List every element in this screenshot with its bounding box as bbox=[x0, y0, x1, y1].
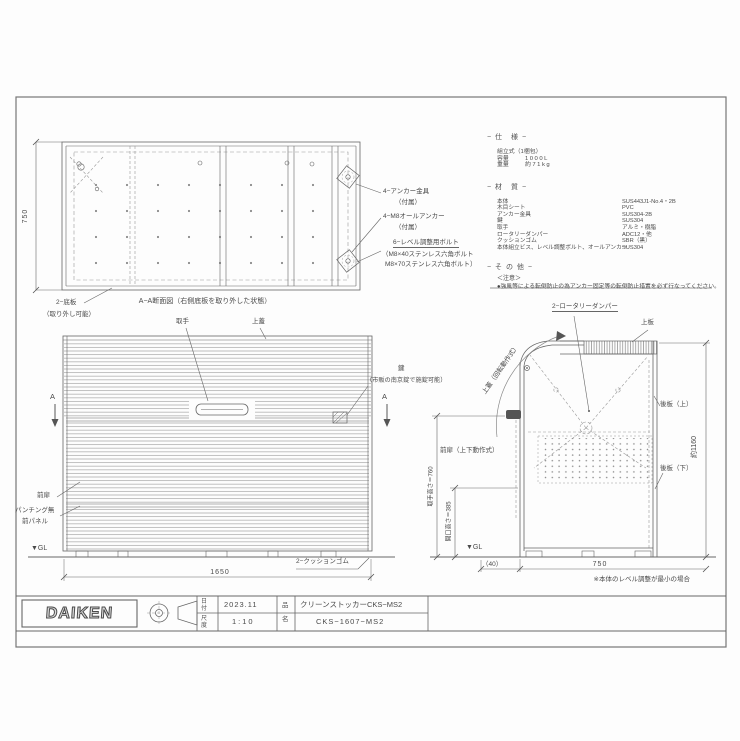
material-label: 本体 bbox=[497, 199, 508, 205]
rotary-damper-label: 2−ロータリーダンパー bbox=[552, 303, 618, 312]
handle-height-dim: 取手高さ＝760 bbox=[429, 456, 436, 516]
date-value: 2023.11 bbox=[224, 601, 258, 610]
material-label: 本体組立ビス、レベル調整ボルト、オールアンカー bbox=[497, 245, 627, 251]
section-marker-a-right: A bbox=[382, 393, 387, 402]
material-label: 取手 bbox=[497, 225, 508, 231]
key-label: 鍵 bbox=[398, 365, 405, 372]
anchor-fitting-sub: （付属） bbox=[395, 199, 421, 206]
front-panel-label-1: パンチング無 bbox=[15, 507, 54, 514]
side-door-label: 前扉（上下動作式） bbox=[440, 447, 499, 454]
bottom-plate-label: 2−底板 bbox=[56, 299, 76, 306]
section-depth-dim: 750 bbox=[22, 186, 30, 246]
caution-text: ●強風等による転倒防止の為アンカー固定等の転倒防止措置を必ず行なってください。 bbox=[497, 283, 726, 291]
material-heading: − 材 質 − bbox=[487, 182, 726, 192]
level-note: ※本体のレベル調整が最小の場合 bbox=[540, 576, 690, 583]
other-heading: − そ の 他 − bbox=[487, 262, 726, 272]
anchor-fitting-label: 4−アンカー金具 bbox=[383, 188, 429, 195]
bottom-plate-sub: （取り外し可能） bbox=[43, 311, 95, 318]
material-label: ロータリーダンパー bbox=[497, 232, 548, 238]
level-bolt-sub2: M8×70ステンレス六角ボルト） bbox=[385, 261, 477, 268]
material-value: SUS304 bbox=[622, 245, 643, 252]
spec-assembly: 組立式（1梱包） bbox=[497, 149, 726, 156]
spec-capacity-label: 容量 bbox=[497, 156, 509, 162]
opening-height-dim: 開口高さ＝385 bbox=[447, 491, 454, 551]
front-panel-label-2: 前パネル bbox=[22, 518, 48, 525]
lid-label: 上蓋 bbox=[252, 318, 265, 325]
spec-block: − 仕 様 − 組立式（1梱包） 容量 1000L 重量 約71kg − 材 質… bbox=[487, 132, 726, 291]
model-number: CKS−1607−MS2 bbox=[316, 618, 384, 627]
depth-dim: 750 bbox=[570, 561, 630, 569]
drawing-sheet: − 仕 様 − 組立式（1梱包） 容量 1000L 重量 約71kg − 材 質… bbox=[0, 0, 740, 741]
all-anchor-sub: （付属） bbox=[395, 224, 421, 231]
material-label: 鍵 bbox=[497, 218, 503, 224]
spec-heading: − 仕 様 − bbox=[487, 132, 726, 142]
spec-weight-value: 約71kg bbox=[525, 162, 551, 169]
date-label: 日付 bbox=[201, 599, 209, 613]
top-plate-label: 上板 bbox=[641, 319, 654, 326]
spec-weight-row: 重量 約71kg bbox=[497, 162, 726, 169]
cushion-label: 2−クッションゴム bbox=[296, 558, 349, 565]
scale-value: 1:10 bbox=[232, 618, 255, 627]
scale-label: 尺度 bbox=[201, 616, 209, 630]
dim-value: 750 bbox=[22, 186, 30, 246]
caution-title: ＜注意＞ bbox=[497, 275, 726, 283]
all-anchor-label: 4−M8オールアンカー bbox=[383, 213, 445, 220]
gl-marker-front: ▼GL bbox=[31, 545, 47, 553]
handle-label: 取手 bbox=[176, 318, 189, 325]
product-name: クリーンストッカーCKS−MS2 bbox=[300, 601, 402, 610]
width-dim: 1650 bbox=[185, 569, 255, 577]
section-view-caption: A−A断面図（右側底板を取り外した状態） bbox=[100, 298, 310, 306]
level-bolt-sub1: （M8×40ステンレス六角ボルト bbox=[382, 251, 474, 258]
back-plate-upper-label: 後板（上） bbox=[660, 401, 693, 408]
spec-weight-label: 重量 bbox=[497, 162, 509, 168]
section-marker-a-left: A bbox=[50, 393, 55, 402]
material-label: 木目シート bbox=[497, 205, 525, 211]
material-label: クッションゴム bbox=[497, 238, 537, 244]
name-label: 品名 bbox=[282, 599, 290, 629]
offset-dim: （40） bbox=[482, 561, 502, 568]
level-bolt-label: 6−レベル調整用ボルト bbox=[393, 239, 459, 248]
height-dim: 約1160 bbox=[691, 417, 699, 477]
front-door-label: 前扉 bbox=[37, 492, 50, 499]
gl-marker-side: ▼GL bbox=[466, 544, 482, 552]
daiken-logo: DAIKEN bbox=[21, 600, 138, 627]
material-label: アンカー金具 bbox=[497, 212, 531, 218]
drawing-linework bbox=[0, 0, 740, 741]
material-row: 本体組立ビス、レベル調整ボルト、オールアンカーSUS304 bbox=[497, 245, 726, 252]
back-plate-lower-label: 後板（下） bbox=[660, 465, 693, 472]
key-sub-label: （市販の南京錠で施錠可能） bbox=[366, 377, 446, 384]
